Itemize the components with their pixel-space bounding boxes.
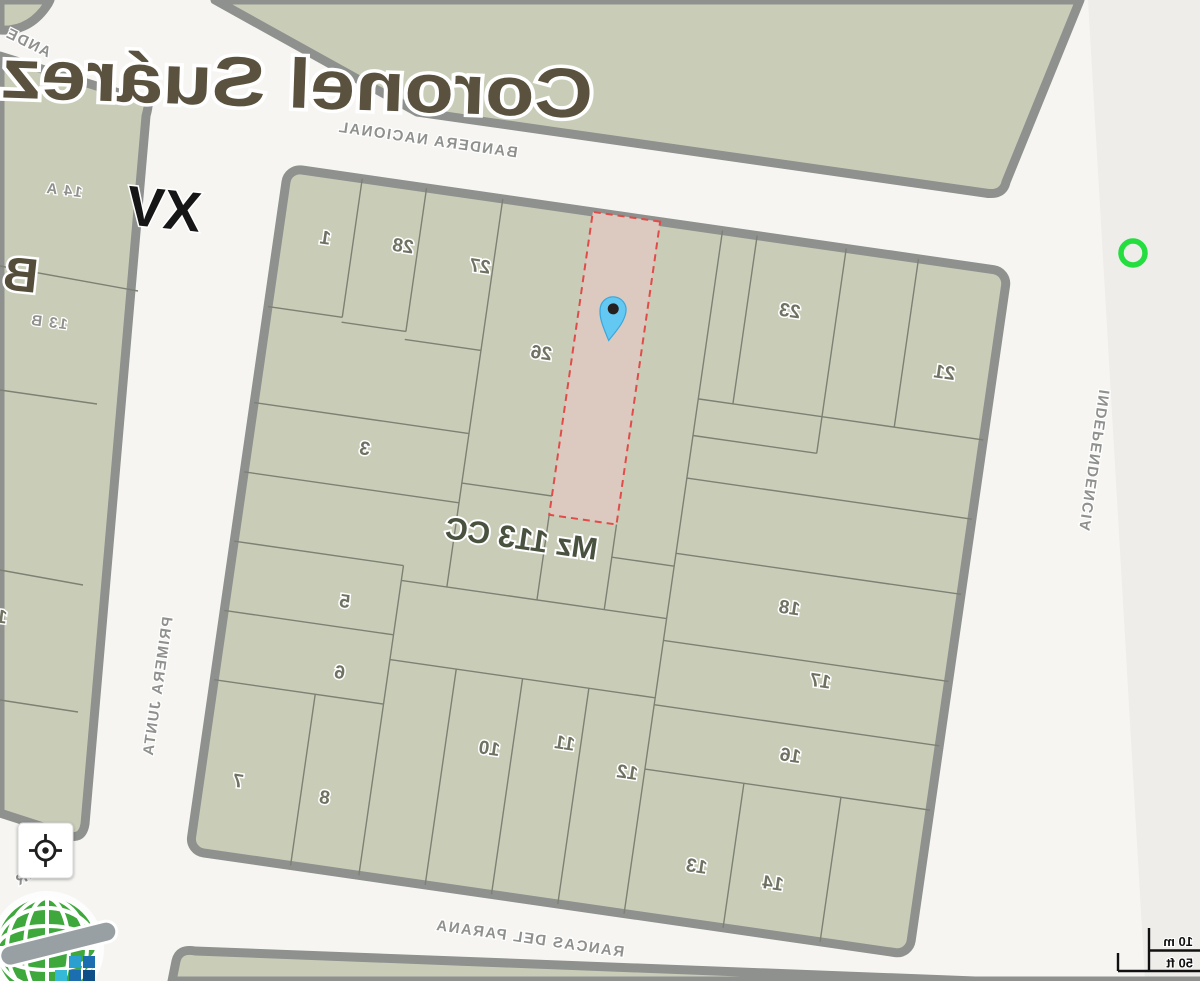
parcel-label: 14 [760, 872, 784, 896]
scale-imperial-label: 50 ft [1166, 956, 1193, 971]
parcel-label: 23 [778, 300, 802, 324]
map-canvas[interactable]: 1 28 27 26 23 21 3 5 6 7 8 10 11 12 13 1… [0, 0, 1200, 981]
map-viewer: 1 28 27 26 23 21 3 5 6 7 8 10 11 12 13 1… [0, 0, 1200, 981]
parcel-label: 16 [778, 744, 802, 768]
parcel-label: 27 [468, 255, 492, 279]
scale-metric-label: 10 m [1163, 934, 1193, 949]
parcel-label: 26 [529, 342, 553, 366]
parcel-label: 21 [932, 361, 956, 385]
parcel-label: 12 [615, 761, 639, 785]
parcel-label: 13 [685, 855, 709, 879]
locate-button[interactable] [18, 823, 73, 878]
parcel-label: 11 [553, 732, 576, 756]
parcel-label: 28 [391, 235, 415, 259]
section-label-b: B [1, 247, 41, 303]
parcel-label: 18 [777, 597, 801, 621]
zone-label-xv: XV [124, 173, 205, 243]
mirrored-map-wrapper: 1 28 27 26 23 21 3 5 6 7 8 10 11 12 13 1… [0, 0, 1200, 981]
parcel-label-partial: 1 [0, 606, 8, 628]
parcel-label: 10 [477, 737, 501, 761]
parcel-label: 17 [808, 670, 832, 694]
